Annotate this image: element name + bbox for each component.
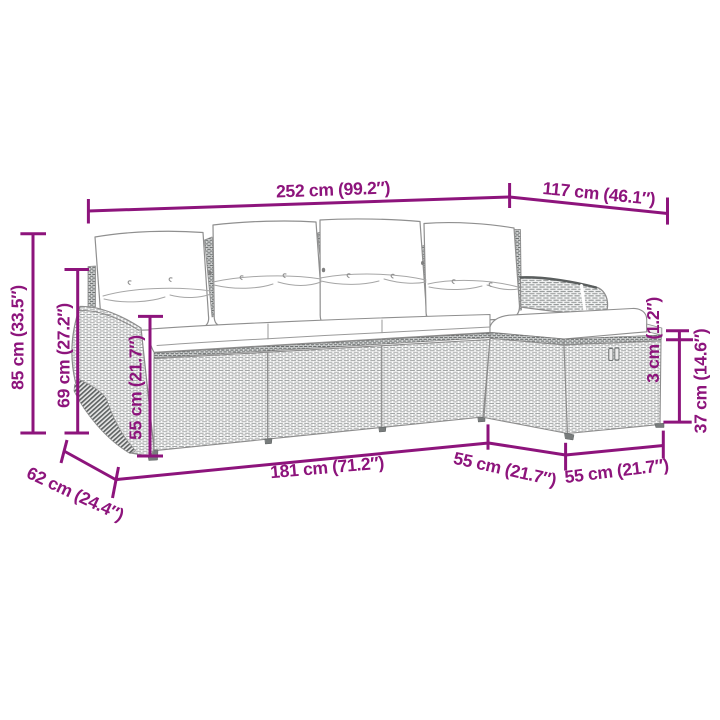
svg-text:37 cm (14.6″): 37 cm (14.6″) [690, 329, 710, 434]
svg-text:3 cm (1.2″): 3 cm (1.2″) [643, 297, 663, 383]
svg-text:85 cm (33.5″): 85 cm (33.5″) [7, 285, 27, 390]
svg-text:117 cm (46.1″): 117 cm (46.1″) [542, 178, 657, 209]
svg-text:55 cm (21.7″): 55 cm (21.7″) [125, 335, 145, 440]
svg-text:55 cm (21.7″): 55 cm (21.7″) [563, 454, 669, 487]
svg-text:69 cm (27.2″): 69 cm (27.2″) [53, 303, 73, 408]
svg-text:55 cm (21.7″): 55 cm (21.7″) [452, 448, 558, 490]
svg-text:252 cm (99.2″): 252 cm (99.2″) [276, 178, 391, 202]
svg-text:62 cm (24.4″): 62 cm (24.4″) [24, 463, 127, 525]
svg-text:181 cm (71.2″): 181 cm (71.2″) [269, 452, 384, 482]
